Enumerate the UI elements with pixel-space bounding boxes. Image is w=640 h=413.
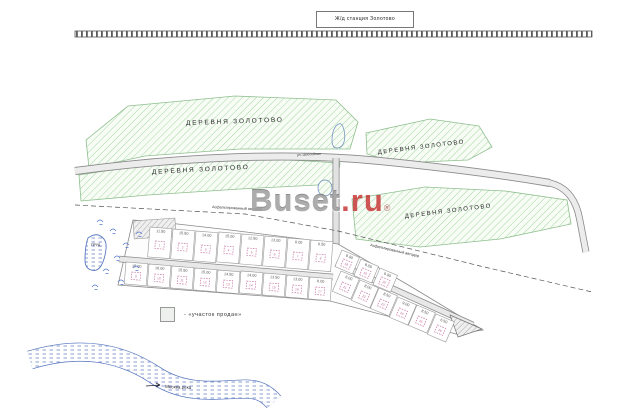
lot-number: 16 (295, 287, 299, 291)
marsh-icon (97, 220, 103, 225)
lot-area: 16.00 (155, 266, 165, 271)
lot-area: 11.50 (156, 229, 166, 234)
cadastral-plan: 11.50115.50214.00315.00412.50513.0068.00… (0, 0, 640, 413)
lot: 13.0016 (285, 275, 309, 299)
registered-icon: ® (384, 203, 392, 213)
lot: 13.006 (263, 236, 287, 268)
lot-area: 12.50 (248, 236, 258, 241)
marsh-icon (110, 229, 116, 234)
lot-area: 8.00 (317, 279, 325, 284)
lot-area: 14.00 (202, 233, 212, 238)
lot: 14.003 (194, 231, 218, 263)
river-water (30, 352, 274, 402)
lot-area: 8.00 (295, 240, 303, 245)
marsh-icon (103, 269, 109, 274)
legend-sold-swatch (160, 307, 175, 322)
village-area-upper-right (366, 119, 492, 163)
lot-area: 15.50 (178, 268, 188, 273)
lot: 15.5011 (170, 266, 194, 290)
lot-number: 14 (249, 283, 253, 287)
lot: 16.0010 (147, 264, 171, 288)
lot-number: 15 (272, 285, 276, 289)
lot-area: 14.50 (224, 272, 234, 277)
lot: 15.004 (217, 232, 241, 264)
pond-label: ПРУД (91, 243, 101, 247)
lot-area: 15.00 (225, 234, 235, 239)
lot: 15.009 (124, 262, 148, 286)
lot: 11.501 (148, 227, 172, 259)
watermark-brand: Buset (250, 183, 341, 218)
watermark-domain: .ru (341, 183, 384, 218)
lot: 8.007 (286, 238, 310, 270)
lot-area: 13.50 (270, 275, 280, 280)
railway-line (75, 31, 592, 37)
lot-number: 13 (226, 282, 230, 286)
lot-number: 11 (180, 278, 184, 282)
lot: 15.502 (171, 229, 195, 261)
lot: 14.0014 (239, 271, 263, 295)
lot-number: 10 (157, 276, 161, 280)
lot: 8.508 (309, 240, 333, 272)
lot: 8.0017 (308, 277, 332, 301)
lot-area: 14.00 (247, 273, 257, 278)
pond (85, 235, 106, 271)
lot: 15.0012 (193, 268, 217, 292)
legend-label: - «участок продан» (184, 312, 242, 318)
watermark: Buset.ru® (250, 183, 391, 219)
station-sign: Ж/д станция Золотово (316, 11, 414, 28)
lot: 12.505 (240, 234, 264, 266)
lot-number: 12 (203, 280, 207, 284)
lot-area: 15.00 (201, 270, 211, 275)
legend: - «участок продан» (160, 307, 242, 322)
lot: 14.5013 (216, 270, 240, 294)
lot-area: 8.50 (318, 242, 326, 247)
lot: 13.5015 (262, 273, 286, 297)
river-label: Москва река (165, 384, 192, 390)
lot-area: 15.50 (179, 231, 189, 236)
lot-area: 13.00 (293, 277, 303, 282)
lot-number: 17 (318, 289, 322, 293)
marsh-icon (92, 285, 98, 290)
lot-area: 13.00 (271, 238, 281, 243)
